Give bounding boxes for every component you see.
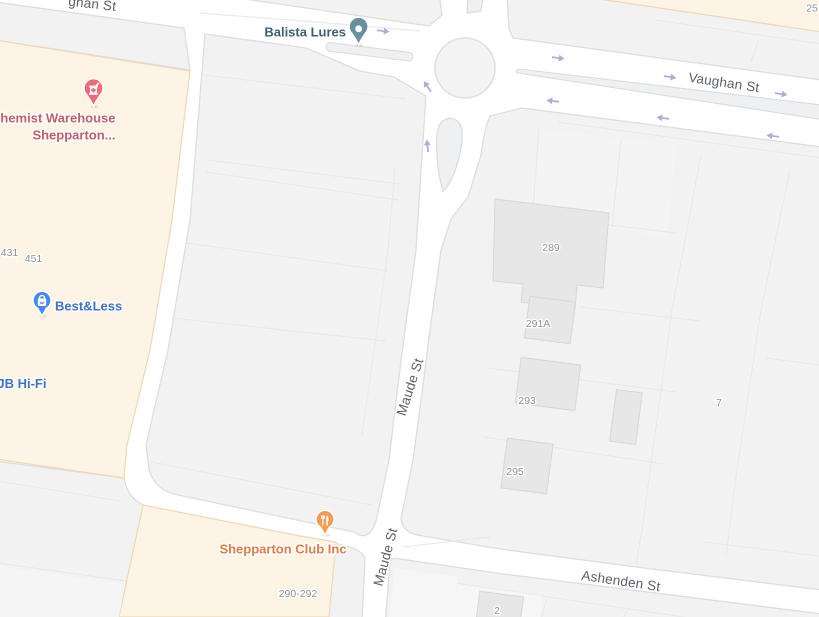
svg-text:25: 25 — [806, 3, 818, 15]
svg-text:Balista Lures: Balista Lures — [264, 25, 346, 40]
svg-text:293: 293 — [518, 395, 536, 407]
svg-text:Shepparton Club Inc: Shepparton Club Inc — [219, 542, 346, 557]
svg-text:451: 451 — [25, 253, 43, 265]
svg-text:Chemist Warehouse: Chemist Warehouse — [0, 111, 116, 126]
svg-text:JB Hi-Fi: JB Hi-Fi — [0, 376, 47, 391]
svg-text:290-292: 290-292 — [279, 588, 318, 600]
svg-text:Best&Less: Best&Less — [55, 299, 122, 314]
svg-text:7: 7 — [716, 397, 722, 409]
svg-text:289: 289 — [542, 242, 560, 254]
svg-text:291A: 291A — [526, 318, 551, 330]
svg-text:Shepparton...: Shepparton... — [32, 128, 115, 143]
svg-text:431: 431 — [1, 247, 19, 259]
svg-text:2: 2 — [494, 605, 500, 617]
svg-text:295: 295 — [506, 466, 524, 478]
